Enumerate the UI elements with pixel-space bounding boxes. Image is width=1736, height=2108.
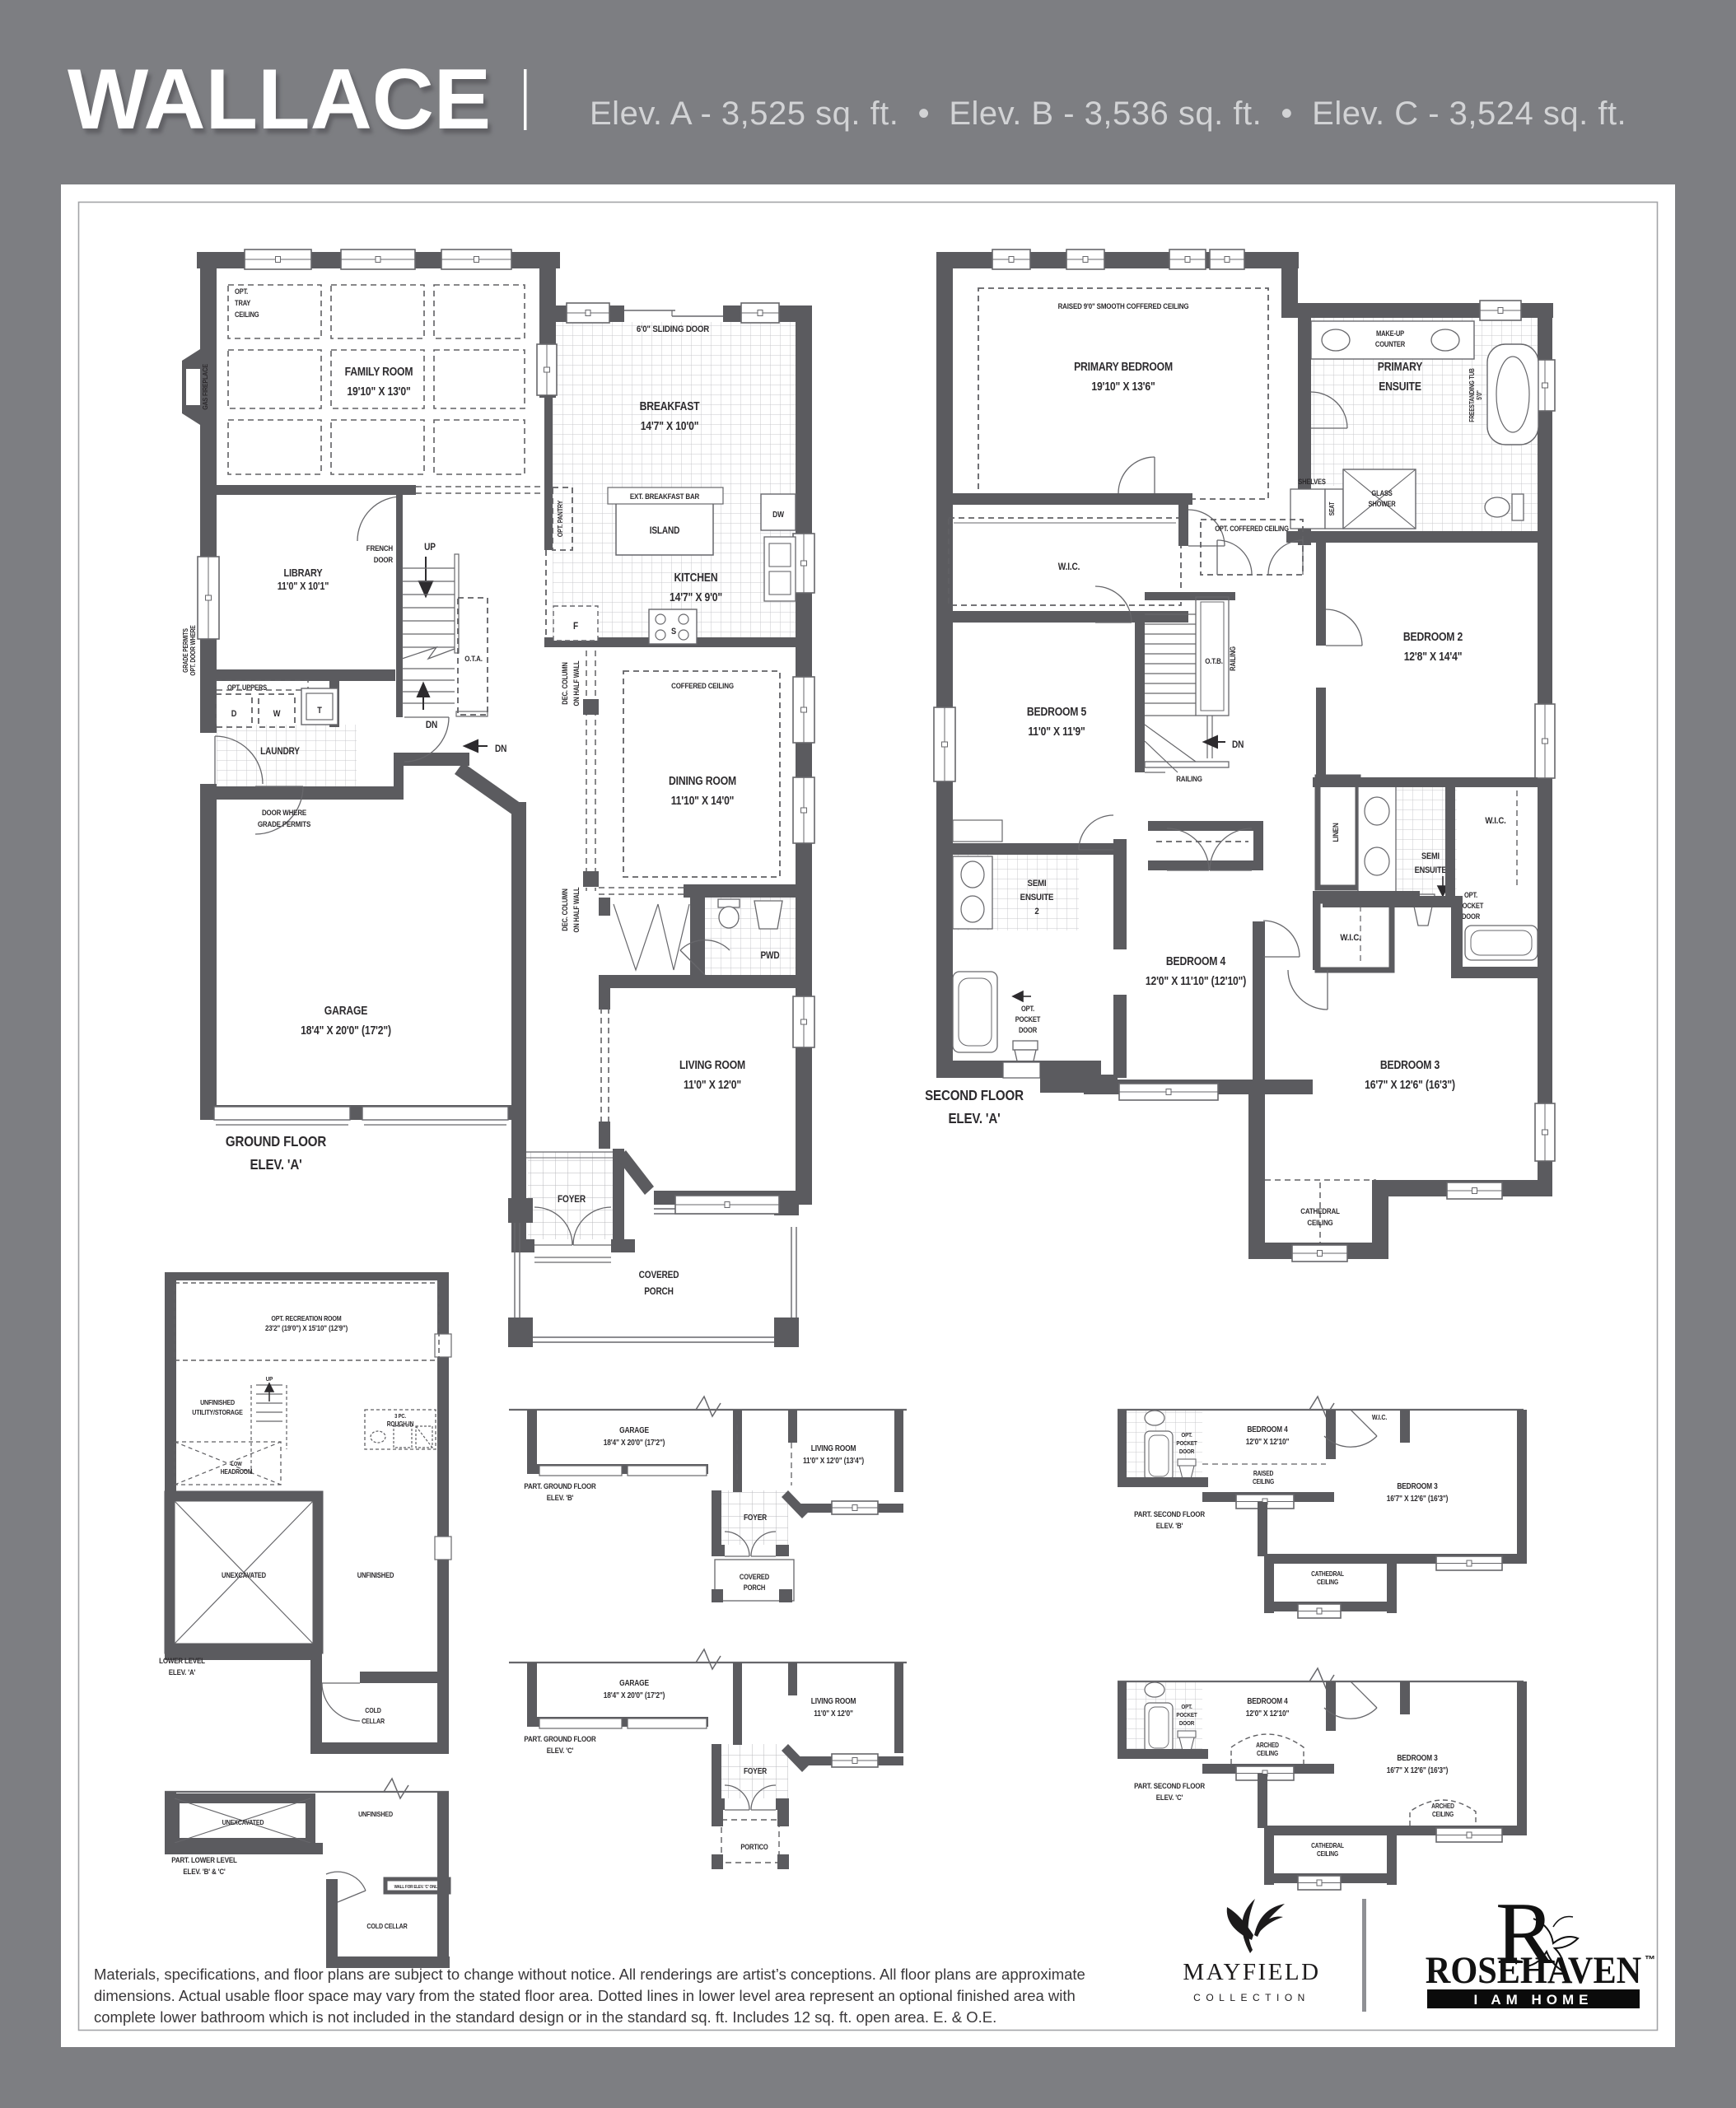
svg-text:PART. GROUND FLOOR: PART. GROUND FLOOR (524, 1734, 596, 1743)
svg-text:OPT.: OPT. (1181, 1705, 1192, 1711)
svg-text:OPT. COFFERED CEILING: OPT. COFFERED CEILING (1215, 524, 1289, 533)
svg-text:12'0" X 12'10": 12'0" X 12'10" (1246, 1709, 1289, 1718)
svg-text:COLLECTION: COLLECTION (1193, 1992, 1310, 2003)
svg-text:19'10" X 13'6": 19'10" X 13'6" (1091, 380, 1155, 393)
svg-text:UNFINISHED: UNFINISHED (200, 1398, 235, 1406)
svg-text:OPT. PANTRY: OPT. PANTRY (556, 500, 564, 537)
svg-text:ENSUITE: ENSUITE (1020, 892, 1054, 902)
svg-text:RAILING: RAILING (1228, 646, 1237, 671)
svg-text:ELEV. 'A': ELEV. 'A' (250, 1156, 301, 1173)
svg-text:ELEV. 'A': ELEV. 'A' (169, 1667, 196, 1677)
svg-text:PWD: PWD (760, 950, 779, 961)
svg-text:11'0" X 12'0" (13'4"): 11'0" X 12'0" (13'4") (803, 1456, 864, 1465)
svg-text:WALLACE: WALLACE (68, 52, 491, 147)
svg-text:FOYER: FOYER (744, 1513, 768, 1522)
svg-text:GROUND FLOOR: GROUND FLOOR (226, 1133, 326, 1150)
svg-text:6'0" SLIDING DOOR: 6'0" SLIDING DOOR (637, 324, 710, 334)
svg-text:DOOR: DOOR (1462, 912, 1480, 921)
svg-text:T: T (317, 706, 322, 716)
svg-text:DW: DW (772, 510, 784, 519)
svg-text:ELEV. 'C': ELEV. 'C' (1156, 1793, 1183, 1802)
svg-text:18'4" X 20'0" (17'2"): 18'4" X 20'0" (17'2") (604, 1438, 665, 1447)
svg-text:S: S (671, 627, 676, 637)
svg-text:ENSUITE: ENSUITE (1379, 380, 1421, 393)
svg-text:LIVING ROOM: LIVING ROOM (679, 1058, 745, 1071)
svg-text:CEILING: CEILING (235, 310, 259, 319)
svg-text:CELLAR: CELLAR (362, 1717, 385, 1725)
svg-text:DN: DN (426, 720, 437, 730)
svg-text:CATHEDRAL: CATHEDRAL (1311, 1569, 1344, 1578)
svg-text:DN: DN (495, 744, 506, 754)
svg-text:DOOR: DOOR (1179, 1449, 1194, 1456)
svg-text:FOYER: FOYER (558, 1194, 586, 1205)
svg-text:DEC. COLUMN: DEC. COLUMN (560, 662, 569, 705)
svg-text:11'0" X 11'9": 11'0" X 11'9" (1028, 725, 1085, 738)
svg-text:16'7" X 12'6" (16'3"): 16'7" X 12'6" (16'3") (1387, 1765, 1449, 1775)
svg-text:PART. SECOND FLOOR: PART. SECOND FLOOR (1134, 1509, 1206, 1518)
svg-text:MAKE-UP: MAKE-UP (1376, 329, 1405, 338)
svg-text:LINEN: LINEN (1331, 823, 1340, 842)
svg-text:PORTICO: PORTICO (740, 1842, 768, 1851)
svg-text:DOOR: DOOR (1019, 1025, 1037, 1034)
svg-text:RAISED: RAISED (1253, 1469, 1274, 1477)
svg-text:2: 2 (1034, 906, 1038, 916)
svg-text:UNEXCAVATED: UNEXCAVATED (222, 1818, 264, 1826)
svg-text:DINING ROOM: DINING ROOM (669, 774, 736, 787)
svg-text:W.I.C.: W.I.C. (1058, 562, 1080, 572)
svg-text:LOWER LEVEL: LOWER LEVEL (159, 1656, 205, 1665)
svg-text:CEILING: CEILING (1317, 1578, 1338, 1586)
svg-text:SHELVES: SHELVES (1298, 477, 1326, 486)
svg-text:BEDROOM 3: BEDROOM 3 (1397, 1481, 1437, 1490)
svg-text:W.I.C.: W.I.C. (1340, 932, 1360, 943)
svg-text:OPT. DOOR WHERE: OPT. DOOR WHERE (189, 625, 197, 675)
svg-text:ELEV. 'A': ELEV. 'A' (948, 1110, 1000, 1127)
svg-text:GLASS: GLASS (1371, 488, 1393, 497)
svg-text:MAYFIELD: MAYFIELD (1183, 1959, 1320, 1985)
svg-text:ROUGH-IN: ROUGH-IN (387, 1420, 414, 1428)
svg-text:SHOWER: SHOWER (1369, 499, 1396, 508)
svg-text:complete lower bathroom which: complete lower bathroom which is not inc… (94, 2008, 996, 2026)
svg-text:PRIMARY BEDROOM: PRIMARY BEDROOM (1074, 360, 1173, 373)
svg-text:W: W (273, 709, 281, 719)
svg-text:FAMILY ROOM: FAMILY ROOM (345, 365, 413, 378)
svg-text:GARAGE: GARAGE (324, 1004, 368, 1017)
svg-text:COVERED: COVERED (740, 1572, 769, 1581)
svg-text:16'7" X 12'6" (16'3"): 16'7" X 12'6" (16'3") (1387, 1494, 1449, 1503)
svg-text:PORCH: PORCH (744, 1583, 766, 1592)
svg-text:DOOR: DOOR (1179, 1721, 1194, 1728)
svg-text:BEDROOM 3: BEDROOM 3 (1380, 1058, 1440, 1071)
svg-text:OPT.: OPT. (1464, 890, 1477, 899)
svg-text:ISLAND: ISLAND (650, 525, 680, 536)
svg-text:OPT.: OPT. (1021, 1004, 1034, 1013)
svg-text:BEDROOM 4: BEDROOM 4 (1247, 1425, 1288, 1434)
svg-text:LIBRARY: LIBRARY (284, 567, 323, 579)
svg-text:ENSUITE: ENSUITE (1415, 865, 1447, 875)
svg-text:COUNTER: COUNTER (1375, 339, 1405, 348)
svg-text:Materials, specifications, and: Materials, specifications, and floor pla… (94, 1966, 1085, 1983)
svg-text:5'0": 5'0" (1475, 390, 1483, 400)
svg-text:ON HALF WALL: ON HALF WALL (572, 887, 581, 932)
svg-text:ELEV. 'C': ELEV. 'C' (547, 1746, 574, 1755)
svg-text:D: D (231, 709, 236, 719)
svg-text:GRADE PERMITS: GRADE PERMITS (258, 819, 311, 828)
svg-text:SEAT: SEAT (1328, 501, 1336, 515)
svg-text:WALL FOR ELEV. 'C' ONLY: WALL FOR ELEV. 'C' ONLY (394, 1885, 440, 1890)
svg-text:Elev. A - 3,525 sq. ft. • El: Elev. A - 3,525 sq. ft. • Elev. B - 3,53… (590, 96, 1626, 132)
svg-text:3 PC.: 3 PC. (394, 1414, 406, 1420)
svg-text:19'10" X 13'0": 19'10" X 13'0" (347, 385, 410, 398)
svg-text:BREAKFAST: BREAKFAST (640, 399, 701, 413)
svg-text:12'8" X 14'4": 12'8" X 14'4" (1404, 650, 1463, 663)
svg-text:TRAY: TRAY (235, 298, 251, 307)
svg-text:CEILING: CEILING (1253, 1477, 1274, 1485)
svg-text:ELEV. 'B' & 'C': ELEV. 'B' & 'C' (183, 1867, 225, 1876)
svg-text:UNFINISHED: UNFINISHED (357, 1570, 394, 1579)
svg-text:UP: UP (424, 542, 436, 553)
svg-text:11'0" X 12'0": 11'0" X 12'0" (684, 1078, 741, 1091)
svg-text:FOYER: FOYER (744, 1766, 768, 1775)
svg-text:PART. SECOND FLOOR: PART. SECOND FLOOR (1134, 1781, 1206, 1790)
svg-text:POCKET: POCKET (1176, 1713, 1197, 1719)
svg-text:GRADE PERMITS: GRADE PERMITS (181, 628, 189, 673)
svg-text:CEILING: CEILING (1432, 1810, 1454, 1818)
svg-text:SEMI: SEMI (1028, 878, 1047, 888)
svg-text:OPT. RECREATION ROOM: OPT. RECREATION ROOM (271, 1314, 341, 1322)
svg-text:COLD CELLAR: COLD CELLAR (366, 1922, 408, 1930)
svg-text:BEDROOM 2: BEDROOM 2 (1403, 630, 1463, 643)
svg-text:I AM HOME: I AM HOME (1474, 1992, 1594, 2008)
svg-text:LOW: LOW (231, 1462, 242, 1468)
svg-text:11'10" X 14'0": 11'10" X 14'0" (671, 794, 735, 807)
svg-text:LAUNDRY: LAUNDRY (260, 746, 300, 757)
svg-text:RAISED 9'0" SMOOTH COFFERED CE: RAISED 9'0" SMOOTH COFFERED CEILING (1058, 301, 1189, 310)
svg-text:14'7" X 9'0": 14'7" X 9'0" (670, 590, 722, 604)
svg-text:RAILING: RAILING (1176, 774, 1202, 783)
svg-text:BEDROOM 4: BEDROOM 4 (1247, 1696, 1288, 1705)
svg-text:W.I.C.: W.I.C. (1485, 815, 1505, 826)
svg-text:PART. GROUND FLOOR: PART. GROUND FLOOR (524, 1481, 596, 1490)
svg-text:CEILING: CEILING (1307, 1218, 1332, 1227)
svg-text:FREESTANDING TUB: FREESTANDING TUB (1468, 368, 1476, 422)
svg-text:16'7" X 12'6" (16'3"): 16'7" X 12'6" (16'3") (1365, 1078, 1455, 1091)
svg-text:ON HALF WALL: ON HALF WALL (572, 660, 581, 706)
svg-text:O.T.B.: O.T.B. (1205, 656, 1223, 665)
svg-text:POCKET: POCKET (1015, 1014, 1041, 1024)
svg-text:11'0" X 12'0": 11'0" X 12'0" (814, 1709, 853, 1718)
svg-text:GARAGE: GARAGE (619, 1425, 649, 1434)
svg-text:18'4" X 20'0" (17'2"): 18'4" X 20'0" (17'2") (604, 1691, 665, 1700)
svg-text:23'2" (19'0") X 15'10" (12'9"): 23'2" (19'0") X 15'10" (12'9") (265, 1323, 348, 1332)
svg-text:OPT.: OPT. (1181, 1433, 1192, 1439)
svg-text:SECOND FLOOR: SECOND FLOOR (925, 1087, 1024, 1104)
svg-text:FRENCH: FRENCH (366, 543, 393, 553)
svg-text:DEC. COLUMN: DEC. COLUMN (560, 888, 569, 931)
svg-text:W.I.C.: W.I.C. (1372, 1413, 1387, 1421)
svg-text:COVERED: COVERED (639, 1270, 679, 1280)
svg-text:CEILING: CEILING (1257, 1749, 1278, 1757)
svg-text:ARCHED: ARCHED (1431, 1802, 1454, 1810)
svg-text:GARAGE: GARAGE (619, 1678, 649, 1687)
svg-text:UNEXCAVATED: UNEXCAVATED (222, 1570, 266, 1579)
svg-text:EXT. BREAKFAST BAR: EXT. BREAKFAST BAR (630, 492, 700, 501)
svg-text:LIVING ROOM: LIVING ROOM (811, 1696, 856, 1705)
svg-text:GAS FIREPLACE: GAS FIREPLACE (201, 364, 209, 410)
svg-text:COLD: COLD (365, 1706, 381, 1714)
svg-text:12'0" X 11'10" (12'10"): 12'0" X 11'10" (12'10") (1146, 974, 1246, 987)
svg-text:UNFINISHED: UNFINISHED (358, 1810, 393, 1818)
svg-text:PORCH: PORCH (644, 1286, 674, 1297)
svg-text:UTILITY/STORAGE: UTILITY/STORAGE (192, 1408, 242, 1416)
svg-text:CEILING: CEILING (1317, 1849, 1338, 1858)
svg-text:BEDROOM 4: BEDROOM 4 (1166, 954, 1226, 968)
svg-text:12'0" X 12'10": 12'0" X 12'10" (1246, 1437, 1289, 1446)
svg-text:POCKET: POCKET (1176, 1441, 1197, 1448)
svg-text:BEDROOM 5: BEDROOM 5 (1027, 705, 1087, 718)
svg-text:SEMI: SEMI (1421, 851, 1440, 861)
svg-text:ROSEHAVEN: ROSEHAVEN (1426, 1948, 1641, 1992)
svg-text:OPT.: OPT. (235, 287, 248, 296)
svg-text:14'7" X 10'0": 14'7" X 10'0" (641, 419, 699, 432)
svg-text:F: F (573, 621, 578, 632)
svg-text:DN: DN (1232, 739, 1244, 750)
svg-text:COFFERED CEILING: COFFERED CEILING (671, 681, 734, 690)
svg-text:BEDROOM 3: BEDROOM 3 (1397, 1753, 1437, 1762)
svg-text:PRIMARY: PRIMARY (1378, 360, 1423, 373)
svg-text:HEADROOM: HEADROOM (221, 1467, 253, 1476)
svg-text:™: ™ (1645, 1953, 1655, 1966)
svg-text:11'0" X 10'1": 11'0" X 10'1" (278, 580, 329, 592)
svg-text:LIVING ROOM: LIVING ROOM (811, 1443, 856, 1453)
svg-text:ELEV. 'B': ELEV. 'B' (547, 1493, 574, 1502)
svg-text:DOOR: DOOR (374, 555, 394, 564)
svg-text:KITCHEN: KITCHEN (674, 571, 718, 584)
svg-text:PART. LOWER LEVEL: PART. LOWER LEVEL (171, 1855, 237, 1864)
svg-text:CATHEDRAL: CATHEDRAL (1311, 1841, 1344, 1849)
svg-text:O.T.A.: O.T.A. (464, 654, 483, 663)
svg-text:ELEV. 'B': ELEV. 'B' (1156, 1521, 1183, 1530)
svg-text:DOOR WHERE: DOOR WHERE (262, 808, 306, 817)
svg-text:UP: UP (266, 1377, 273, 1383)
svg-text:18'4" X 20'0" (17'2"): 18'4" X 20'0" (17'2") (301, 1024, 391, 1037)
svg-text:CATHEDRAL: CATHEDRAL (1300, 1206, 1340, 1215)
svg-text:ARCHED: ARCHED (1256, 1741, 1279, 1749)
svg-text:dimensions. Actual usable floo: dimensions. Actual usable floor space ma… (94, 1987, 1076, 2004)
